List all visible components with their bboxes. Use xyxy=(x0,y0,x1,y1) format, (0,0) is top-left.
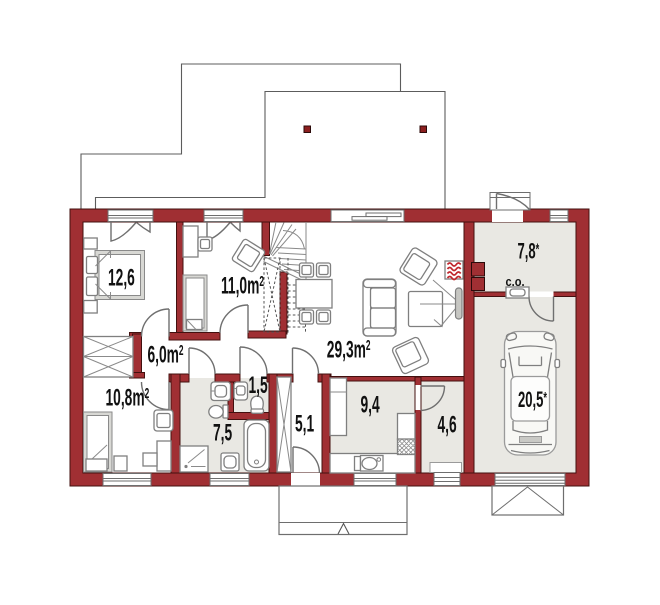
svg-text:9,4: 9,4 xyxy=(361,392,380,419)
svg-text:1,5: 1,5 xyxy=(249,372,268,399)
svg-text:11,0m2: 11,0m2 xyxy=(221,273,264,300)
svg-text:5,1: 5,1 xyxy=(295,411,314,438)
svg-text:10,8m2: 10,8m2 xyxy=(106,385,150,412)
svg-text:7,5: 7,5 xyxy=(213,420,232,447)
svg-text:6,0m2: 6,0m2 xyxy=(148,342,184,369)
svg-text:12,6: 12,6 xyxy=(108,265,135,292)
svg-text:20,5*: 20,5* xyxy=(518,386,548,412)
svg-text:4,6: 4,6 xyxy=(438,412,457,439)
svg-text:29,3m2: 29,3m2 xyxy=(327,336,371,363)
svg-text:c.o.: c.o. xyxy=(506,274,525,289)
